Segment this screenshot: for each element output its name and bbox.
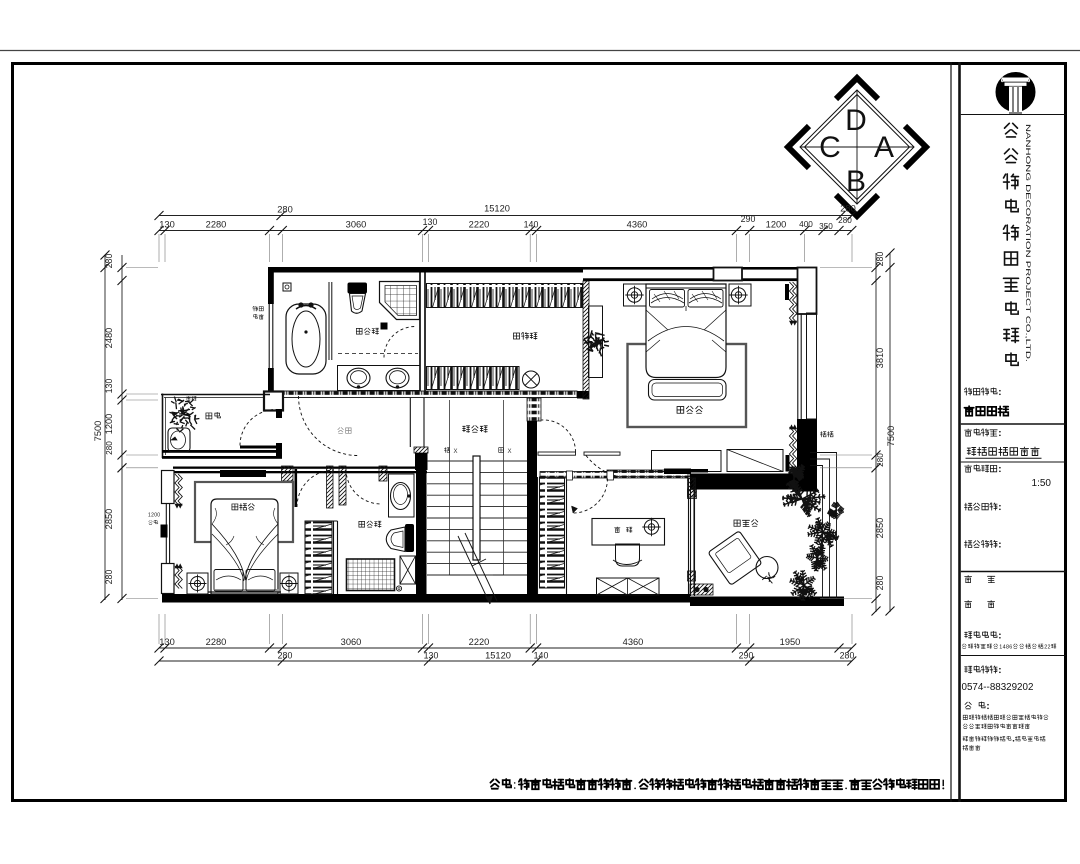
svg-text:3810: 3810	[875, 348, 885, 369]
svg-text:280: 280	[875, 576, 885, 591]
svg-text:290: 290	[739, 651, 754, 661]
svg-text:1200: 1200	[766, 220, 787, 230]
svg-text:2280: 2280	[206, 637, 227, 647]
svg-text:1200: 1200	[104, 414, 114, 435]
svg-text:X: X	[508, 449, 512, 455]
svg-text:3060: 3060	[341, 637, 362, 647]
svg-text:280: 280	[875, 252, 885, 267]
svg-text:4360: 4360	[627, 220, 648, 230]
svg-text:280: 280	[277, 205, 293, 215]
svg-text:280: 280	[278, 651, 293, 661]
svg-text:3060: 3060	[346, 220, 367, 230]
svg-text:280: 280	[876, 453, 885, 467]
svg-text:2280: 2280	[206, 220, 227, 230]
svg-text:NANHONG DECORATION PROJECT CO.: NANHONG DECORATION PROJECT CO.,LTD.	[1024, 124, 1031, 362]
svg-text:7500: 7500	[886, 426, 896, 447]
svg-text:280: 280	[840, 651, 855, 661]
svg-text:0574--88329202: 0574--88329202	[962, 682, 1034, 693]
svg-text:280: 280	[840, 204, 856, 214]
svg-text:15120: 15120	[484, 204, 510, 214]
svg-text:400: 400	[799, 220, 813, 229]
svg-text:2480: 2480	[104, 328, 114, 349]
svg-text:130: 130	[104, 379, 114, 394]
svg-text:130: 130	[159, 220, 175, 230]
svg-text:130: 130	[159, 637, 175, 647]
svg-text:4360: 4360	[623, 637, 644, 647]
svg-text:A: A	[874, 131, 894, 164]
svg-text:280: 280	[838, 216, 852, 225]
svg-text:130: 130	[423, 217, 438, 227]
svg-text:2220: 2220	[469, 220, 490, 230]
svg-text:1:50: 1:50	[1032, 478, 1052, 489]
svg-text:X: X	[454, 449, 458, 455]
svg-text:2850: 2850	[875, 518, 885, 539]
svg-text:130: 130	[424, 651, 439, 661]
svg-text:2: 2	[1048, 644, 1051, 650]
svg-text:280: 280	[105, 441, 114, 455]
svg-text:7500: 7500	[93, 421, 103, 442]
svg-text:0: 0	[157, 512, 160, 518]
svg-text:6: 6	[1009, 644, 1012, 650]
svg-text:15120: 15120	[485, 651, 511, 661]
svg-text:280: 280	[104, 570, 114, 585]
svg-text:D: D	[845, 104, 867, 137]
svg-text:B: B	[846, 165, 866, 198]
svg-text:2220: 2220	[469, 637, 490, 647]
svg-text:280: 280	[104, 254, 114, 269]
svg-text:140: 140	[524, 220, 539, 230]
svg-text:1950: 1950	[780, 637, 801, 647]
svg-text:290: 290	[741, 214, 756, 224]
svg-text:140: 140	[534, 651, 549, 661]
svg-text:350: 350	[819, 222, 833, 231]
svg-text:C: C	[819, 131, 841, 164]
svg-text:2850: 2850	[104, 509, 114, 530]
